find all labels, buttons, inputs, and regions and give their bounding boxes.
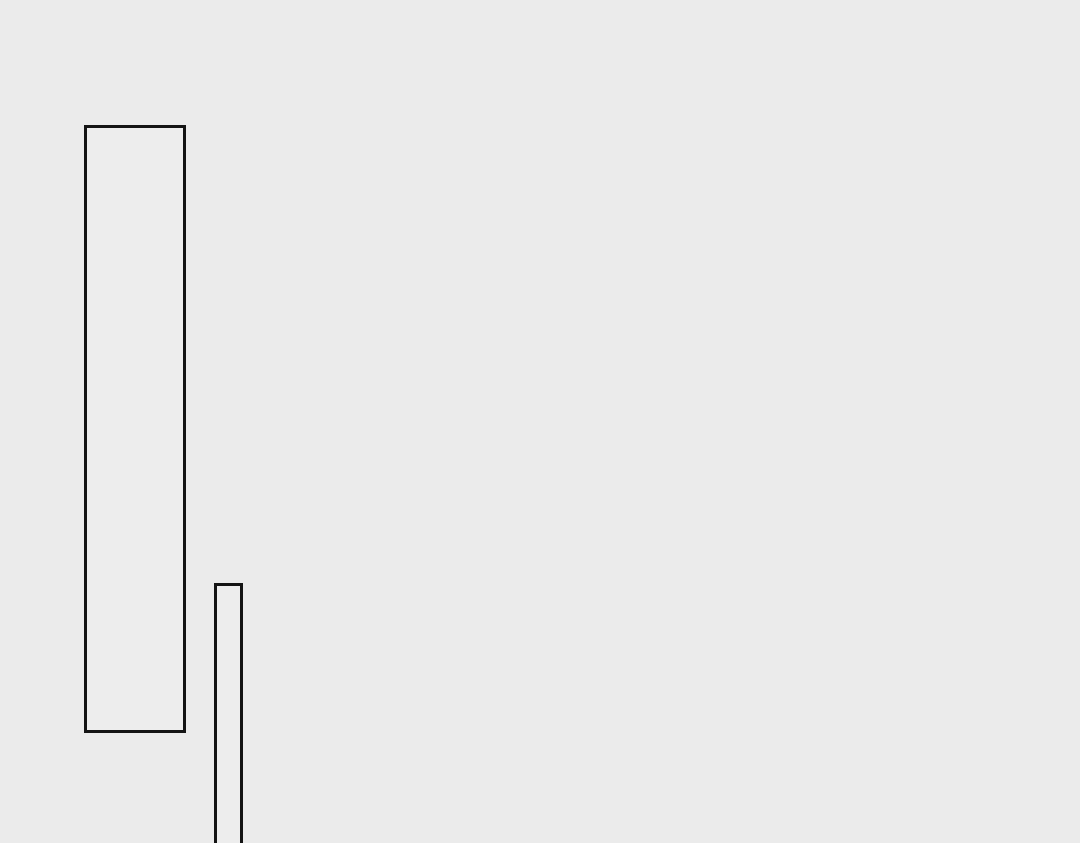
drawing-canvas <box>0 0 1080 843</box>
thin-rectangle[interactable] <box>214 583 243 843</box>
tall-rectangle[interactable] <box>84 125 186 733</box>
